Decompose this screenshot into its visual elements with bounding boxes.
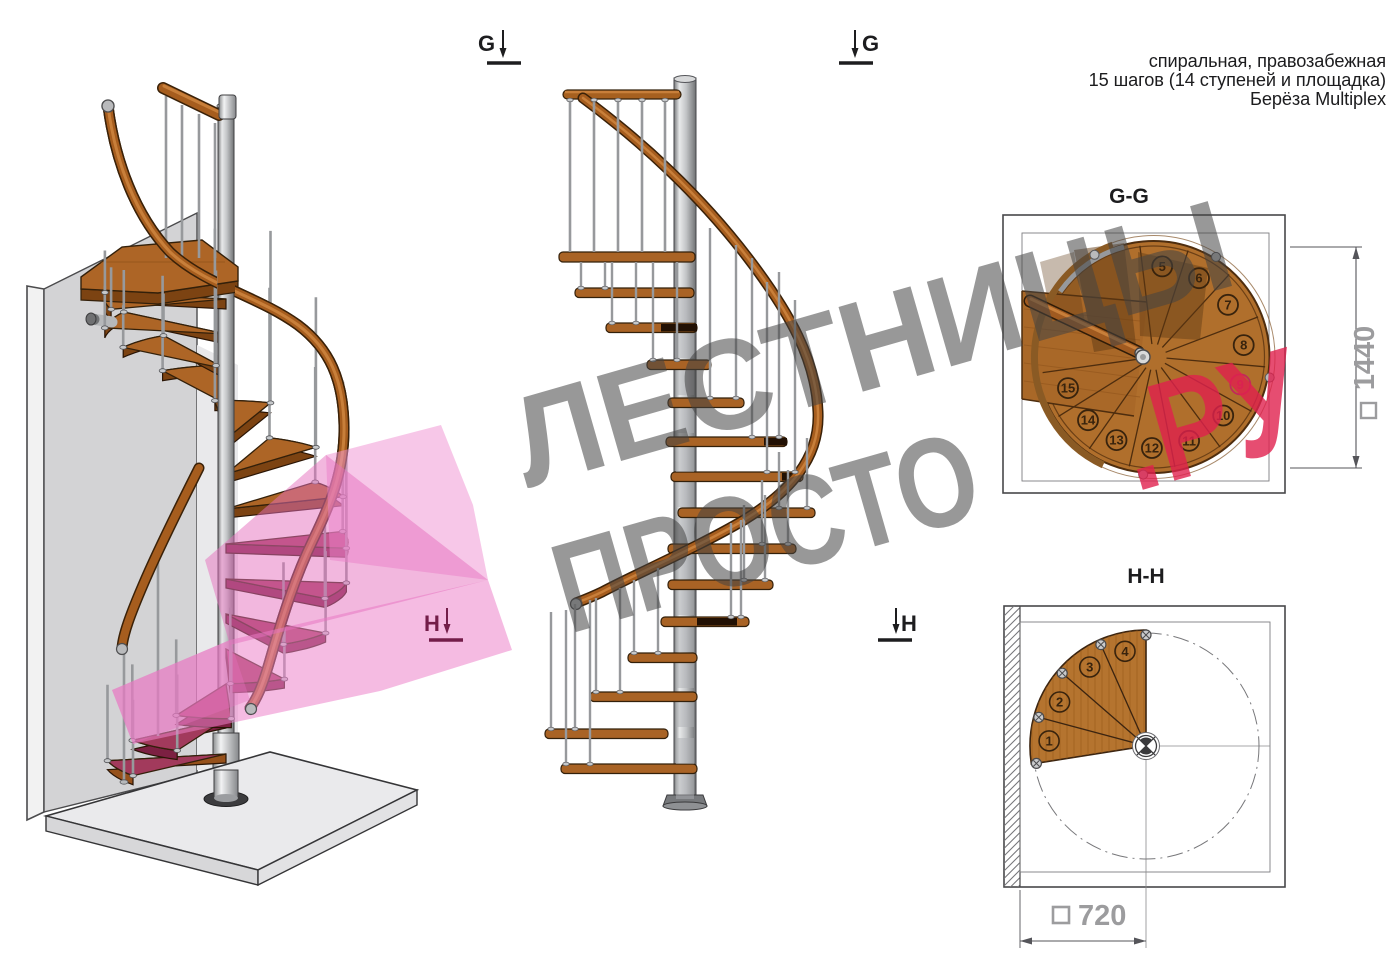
svg-text:1: 1 (1045, 733, 1052, 748)
svg-text:H: H (901, 611, 917, 636)
svg-text:4: 4 (1121, 644, 1129, 659)
svg-text:Берёза Multiplex: Берёза Multiplex (1250, 89, 1386, 109)
svg-text:G: G (478, 31, 495, 56)
svg-text:спиральная, правозабежная: спиральная, правозабежная (1149, 51, 1386, 71)
svg-text:15: 15 (1061, 381, 1075, 396)
svg-text:720: 720 (1078, 900, 1126, 932)
svg-text:H: H (424, 611, 440, 636)
svg-text:H-H: H-H (1127, 565, 1164, 588)
svg-text:2: 2 (1056, 695, 1063, 710)
svg-text:G: G (862, 31, 879, 56)
svg-text:15 шагов (14 ступеней и площад: 15 шагов (14 ступеней и площадка) (1089, 70, 1386, 90)
svg-text:3: 3 (1086, 660, 1093, 675)
svg-text:1440: 1440 (1349, 326, 1381, 391)
svg-text:14: 14 (1081, 413, 1096, 428)
